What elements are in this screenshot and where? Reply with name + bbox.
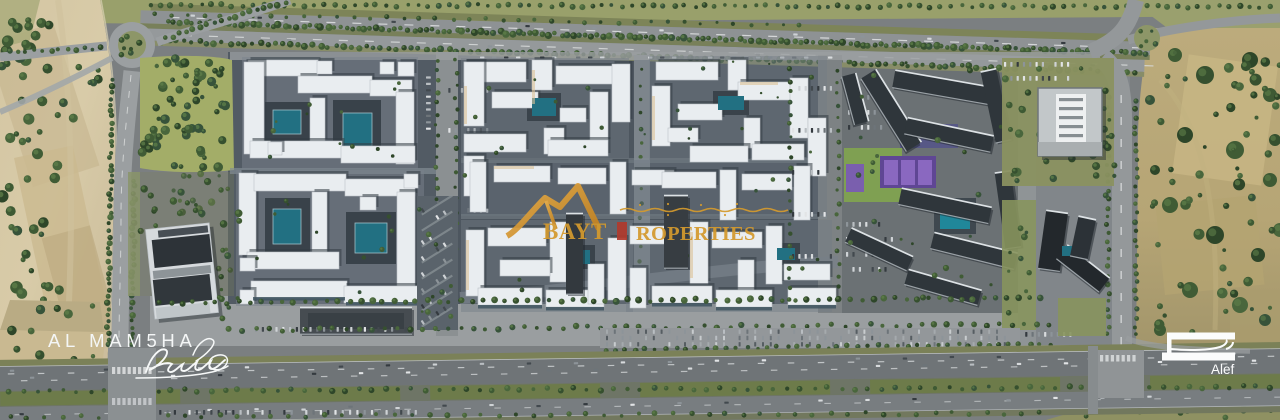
svg-text:Alef: Alef — [1211, 362, 1235, 377]
svg-text:AL MAM5HA: AL MAM5HA — [48, 330, 197, 351]
svg-text:BAYT: BAYT — [543, 219, 607, 244]
svg-text:ROPERTIES: ROPERTIES — [636, 223, 756, 245]
